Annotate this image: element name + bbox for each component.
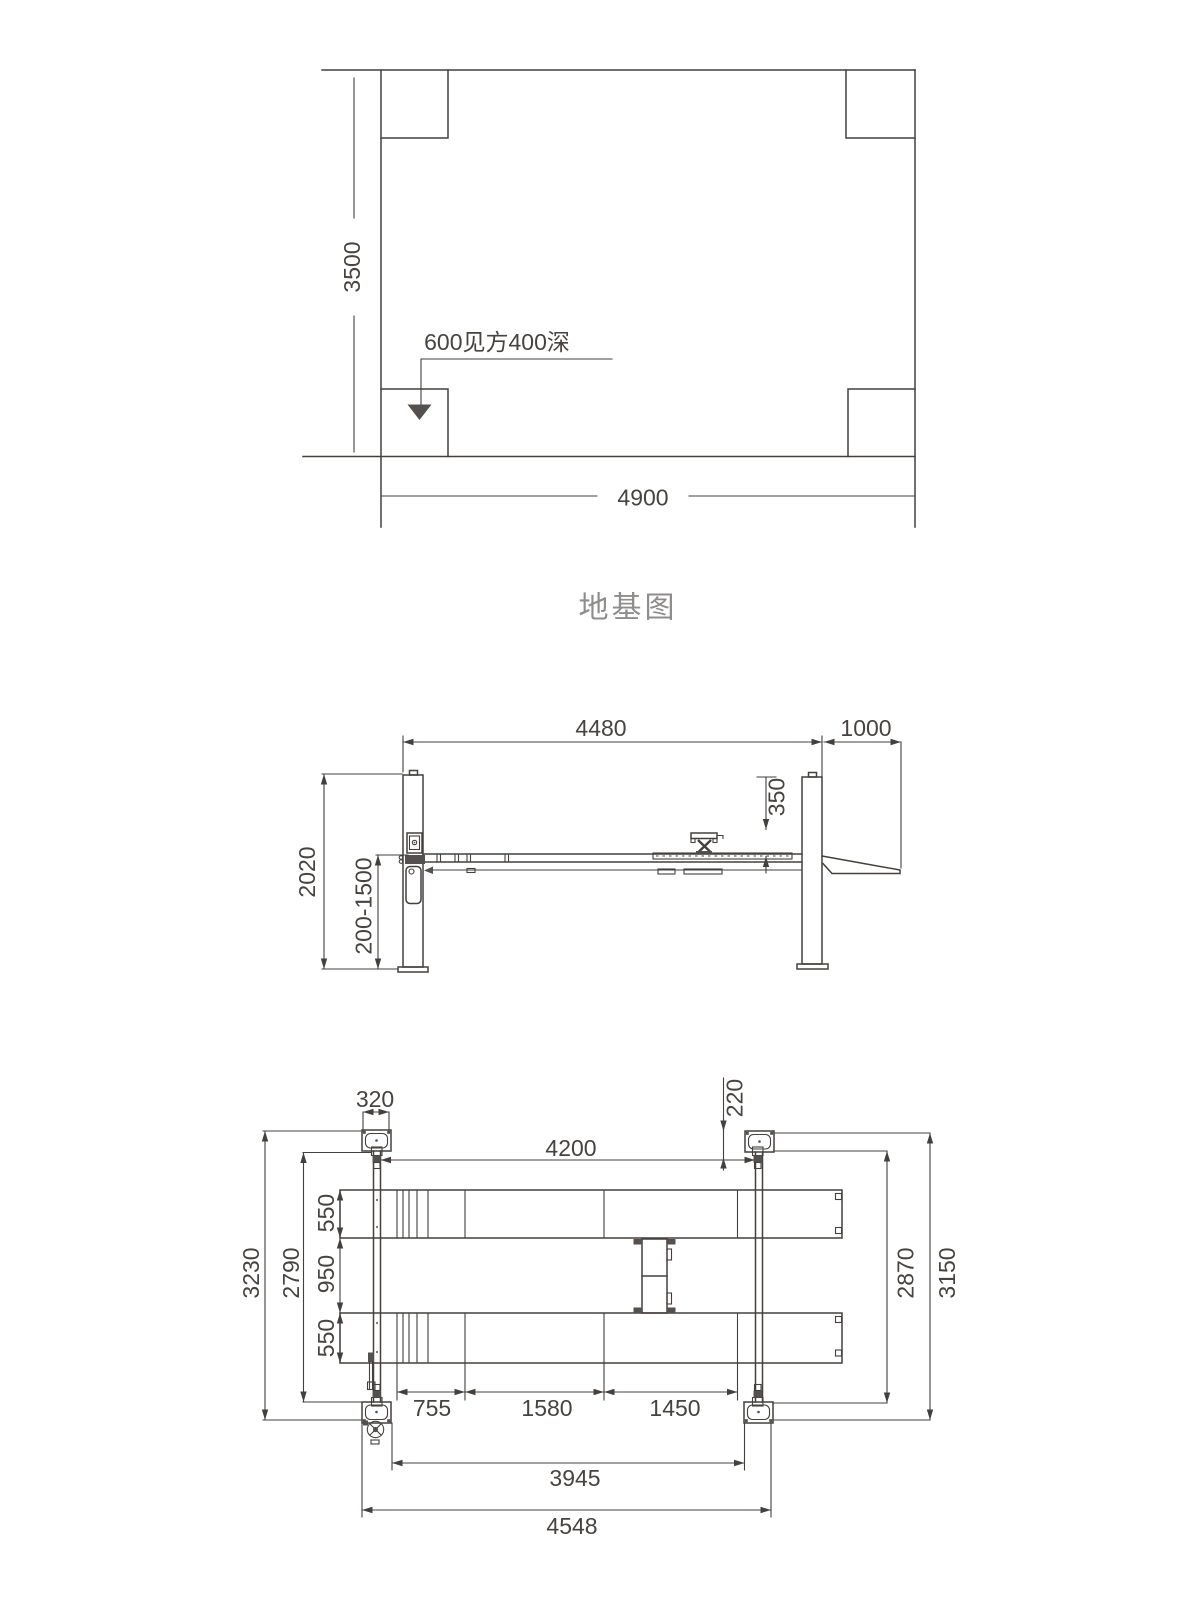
dim-550-front-label: 550	[313, 1194, 339, 1232]
dim-4900-label: 4900	[617, 485, 668, 511]
rolling-jack-elevation	[691, 833, 723, 854]
pit-bottom-right	[848, 389, 915, 457]
dim-220-label: 220	[722, 1079, 748, 1117]
runway-front	[340, 1190, 842, 1238]
latch-pin-top	[399, 856, 403, 860]
dim-2790-label: 2790	[278, 1247, 304, 1298]
dim-3500-label: 3500	[339, 241, 365, 292]
dim-755-label: 755	[413, 1395, 451, 1421]
post-bottom-right	[744, 1385, 773, 1424]
elevation-view: 4480 1000 2020 200-1500 350	[294, 715, 901, 972]
dim-1000-label: 1000	[840, 715, 891, 741]
caster-wheel	[363, 1421, 384, 1445]
latch-pin-bottom	[399, 860, 403, 864]
pit-marker-icon	[408, 405, 432, 421]
left-crossbeam	[374, 1151, 381, 1402]
drawing-title: 地基图	[579, 592, 678, 625]
dim-320-label: 320	[356, 1086, 394, 1112]
dim-1580-label: 1580	[521, 1395, 572, 1421]
latch-block	[405, 855, 425, 864]
left-post-cap	[410, 771, 418, 776]
drawing-sheet: 3500 4900 600见方400深 地基图	[0, 0, 1200, 1610]
pit-note-label: 600见方400深	[424, 329, 570, 355]
dim-4480-label: 4480	[575, 715, 626, 741]
dim-2020-label: 2020	[294, 846, 320, 897]
plan-view: 320 220 4200 550 950 550 3230 2790 2870 …	[238, 1078, 960, 1539]
dim-lift-range-label: 200-1500	[351, 857, 377, 954]
dim-3230-label: 3230	[238, 1247, 264, 1298]
right-post-cap	[809, 773, 817, 778]
pit-bottom-left	[381, 389, 448, 457]
pit-leader-line	[421, 359, 612, 405]
dim-950-label: 950	[313, 1255, 339, 1293]
post-top-left	[362, 1130, 391, 1169]
runway-rear	[340, 1313, 842, 1363]
runway-joints	[437, 854, 509, 862]
dim-350-label: 350	[764, 778, 790, 816]
dim-4548-label: 4548	[546, 1513, 597, 1539]
control-box	[407, 833, 422, 853]
pit-top-right	[846, 70, 915, 138]
dim-3150-label: 3150	[934, 1247, 960, 1298]
power-unit-port	[409, 869, 414, 874]
foundation-plan-view: 3500 4900 600见方400深	[303, 70, 915, 527]
left-post-base	[398, 967, 428, 972]
plan-extension-lines	[263, 1112, 930, 1517]
rolling-jack-plan	[634, 1239, 676, 1313]
dim-4200-label: 4200	[545, 1135, 596, 1161]
drive-ramp	[822, 856, 900, 874]
runway-front-joints	[397, 1190, 738, 1238]
right-post-base	[797, 964, 828, 969]
pit-top-left	[381, 70, 448, 138]
post-top-right	[745, 1131, 774, 1169]
dim-3945-label: 3945	[549, 1465, 600, 1491]
runway-rear-joints	[397, 1313, 738, 1363]
dim-2870-label: 2870	[893, 1247, 919, 1298]
post-bottom-left	[362, 1385, 391, 1424]
dim-1450-label: 1450	[649, 1395, 700, 1421]
wheel-stop-icon	[424, 867, 433, 875]
runway-profile	[423, 854, 802, 862]
right-post	[802, 777, 822, 964]
dim-550-rear-label: 550	[313, 1319, 339, 1357]
